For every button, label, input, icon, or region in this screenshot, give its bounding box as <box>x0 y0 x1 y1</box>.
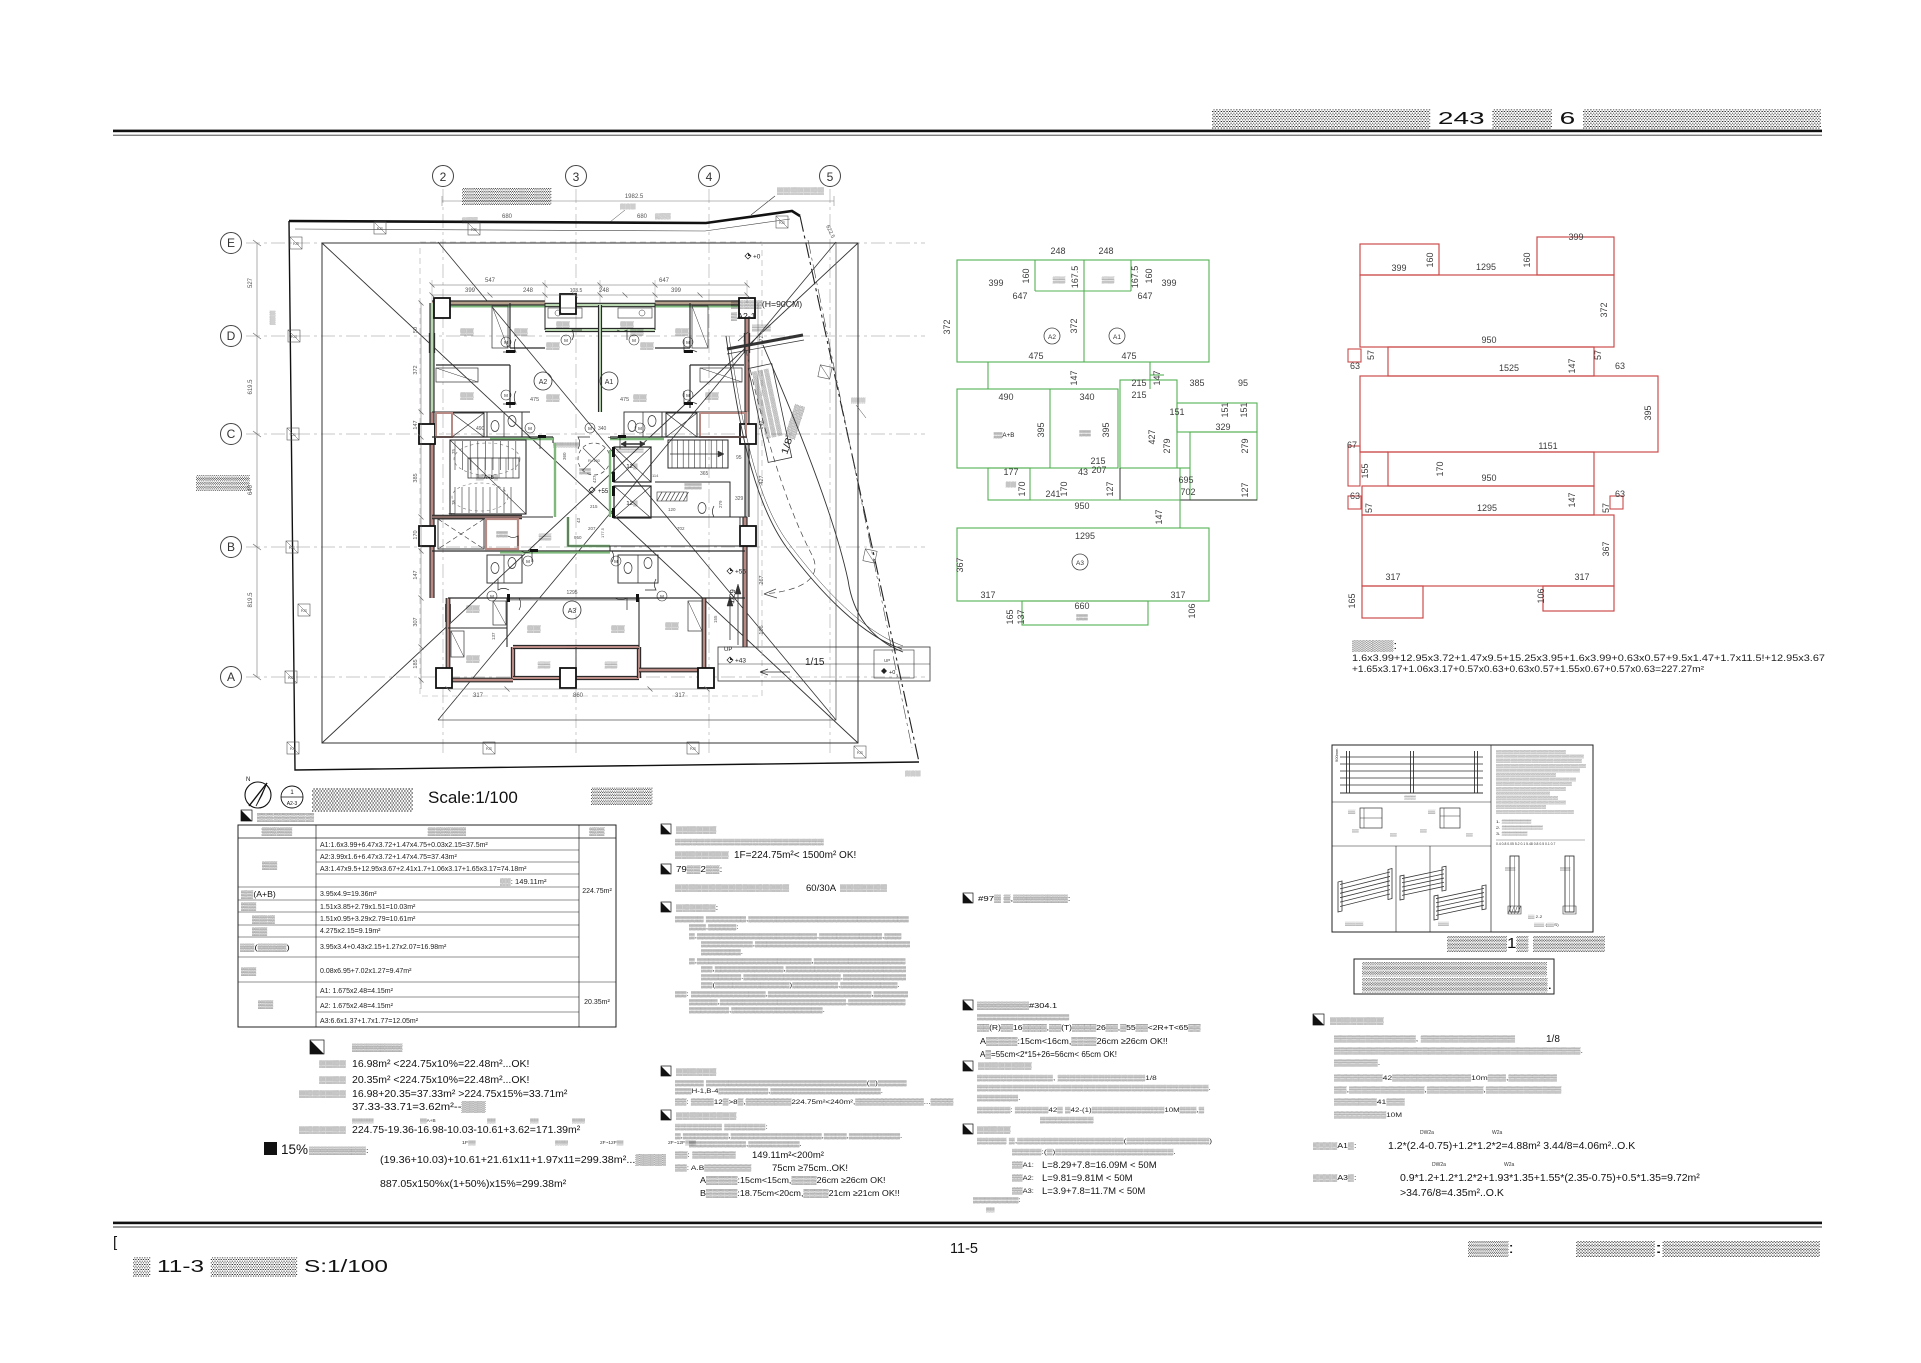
svg-text:1/15: 1/15 <box>805 657 825 668</box>
svg-text:1/8: 1/8 <box>1546 1034 1560 1045</box>
svg-text:▒▒▒▒▒▒▒▒▒▒▒▒▒▒▒▒▒▒▒▒▒▒▒▒▒▒▒▒▒▒: ▒▒▒▒▒▒▒▒▒▒▒▒▒▒▒▒▒▒▒▒▒▒▒▒▒▒▒▒▒▒▒▒▒▒▒▒▒▒▒. <box>1334 1047 1583 1055</box>
svg-text:680: 680 <box>502 214 513 220</box>
svg-text:63: 63 <box>1615 489 1625 499</box>
svg-text:149.11m²<200m²: 149.11m²<200m² <box>752 1150 824 1161</box>
svg-text:▒▒▒▒▒▒: ▒▒▒▒▒▒ <box>676 1068 716 1076</box>
svg-text:475: 475 <box>1121 351 1136 361</box>
svg-text:▒▒▒▒▒▒▒▒▒▒▒▒▒▒▒: ▒▒▒▒▒▒▒▒▒▒▒▒▒▒▒ <box>1362 961 1548 977</box>
svg-text:527: 527 <box>248 277 254 288</box>
svg-text:63: 63 <box>1615 361 1625 371</box>
svg-text:329: 329 <box>1215 422 1230 432</box>
svg-text:819.5: 819.5 <box>248 592 254 608</box>
svg-text:860: 860 <box>573 693 584 699</box>
svg-text:▒▒▒▒▒▒▒.: ▒▒▒▒▒▒▒. <box>1334 1059 1380 1067</box>
svg-text:R=150: R=150 <box>588 458 601 463</box>
svg-text:▒▒▒▒▒▒▒▒42▒▒▒▒▒▒▒▒▒▒▒▒▒10m▒▒▒,: ▒▒▒▒▒▒▒▒42▒▒▒▒▒▒▒▒▒▒▒▒▒10m▒▒▒,▒▒▒▒▒▒▒▒ <box>1334 1074 1557 1082</box>
svg-text:▒▒▒▒▒▒▒: ▒▒▒▒▒▒▒ <box>352 1043 403 1052</box>
svg-text:106: 106 <box>1187 603 1197 618</box>
svg-text:367: 367 <box>955 557 965 572</box>
svg-text:▒▒▒▒A1▒:: ▒▒▒▒A1▒: <box>1313 1142 1356 1150</box>
svg-text:▒▒: ▒▒▒▒▒▒▒: ▒▒: ▒▒▒▒▒▒▒ <box>675 1151 736 1159</box>
svg-text:+55: +55 <box>598 489 609 495</box>
svg-text:67: 67 <box>1347 440 1357 450</box>
svg-text:▒▒: ▒▒ <box>633 394 646 402</box>
svg-text:279: 279 <box>1240 438 1250 453</box>
svg-text:▒▒▒: ▒▒▒ <box>851 397 866 404</box>
svg-text:63: 63 <box>1350 491 1360 501</box>
svg-text:2: 2 <box>440 170 447 184</box>
svg-text:A1: A1 <box>1113 334 1121 341</box>
svg-text:177: 177 <box>1003 467 1018 477</box>
svg-text:A3:6.6x1.37+1.7x1.77=12.05m²: A3:6.6x1.37+1.7x1.77=12.05m² <box>320 1018 419 1025</box>
svg-text:12▒: 12▒ <box>626 463 638 470</box>
svg-text:▒▒: ▒▒ <box>262 861 278 870</box>
svg-text:170: 170 <box>1017 481 1027 496</box>
svg-text:151: 151 <box>1239 402 1249 417</box>
svg-text:372: 372 <box>942 319 952 334</box>
svg-text:▒▒: ▒▒ <box>460 392 473 400</box>
svg-text:▒▒A2:: ▒▒A2: <box>1012 1174 1034 1182</box>
svg-text:▒▒▒: ▒▒▒ <box>462 217 478 224</box>
svg-text:▒▒: ▒▒ <box>1102 276 1115 284</box>
svg-text:▒▒: A.B▒▒▒▒▒▒▒▒: ▒▒: A.B▒▒▒▒▒▒▒▒ <box>675 1164 752 1172</box>
svg-text:▒▒▒▒▒▒▒▒▒▒▒▒▒▒▒▒.: ▒▒▒▒▒▒▒▒▒▒▒▒▒▒▒▒. <box>1362 977 1552 993</box>
svg-text:▒▒A1:: ▒▒A1: <box>1012 1161 1034 1169</box>
svg-text:▒▒▒▒▒▒▒▒#304.1: ▒▒▒▒▒▒▒▒#304.1 <box>977 1001 1057 1010</box>
svg-text:15%: 15% <box>281 1142 308 1157</box>
svg-text:KS: KS <box>291 334 297 339</box>
svg-text:147: 147 <box>1152 370 1162 385</box>
svg-text:L=9.81=9.81M < 50M: L=9.81=9.81M < 50M <box>1042 1173 1133 1184</box>
svg-text:360: 360 <box>562 452 567 460</box>
svg-text:▒▒▒: ▒▒▒ <box>655 213 671 220</box>
svg-text:D: D <box>227 329 236 343</box>
svg-text:43: 43 <box>576 517 581 523</box>
svg-text:1982.5: 1982.5 <box>625 194 644 200</box>
svg-text:▒▒▒▒▒▒▒▒▒▒▒▒▒▒▒▒: ▒▒▒▒▒▒▒▒▒▒▒▒▒▒▒▒ <box>977 1014 1070 1021</box>
svg-text:KS: KS <box>690 746 696 751</box>
svg-text:▒▒,▒▒▒▒▒▒▒▒▒▒▒▒,▒▒▒▒▒▒▒▒▒▒▒▒▒▒: ▒▒,▒▒▒▒▒▒▒▒▒▒▒▒,▒▒▒▒▒▒▒▒▒▒▒▒▒▒▒▒▒▒▒▒▒ <box>701 966 907 973</box>
svg-text:1.51x3.85+2.79x1.51=10.03m²: 1.51x3.85+2.79x1.51=10.03m² <box>320 904 416 911</box>
svg-text:▒▒▒▒▒:(▒)▒▒▒▒▒▒▒▒▒▒▒▒▒▒▒▒▒▒▒▒.: ▒▒▒▒▒:(▒)▒▒▒▒▒▒▒▒▒▒▒▒▒▒▒▒▒▒▒▒. <box>1012 1148 1176 1156</box>
svg-text:185: 185 <box>413 659 419 668</box>
svg-text:16.98m² <224.75x10%=22.48m²..: 16.98m² <224.75x10%=22.48m²...OK! <box>352 1058 529 1070</box>
svg-text:▒▒▒▒▒▒▒: ▒▒▒▒▒▒▒ <box>299 1126 346 1134</box>
svg-text:M: M <box>528 426 532 431</box>
svg-text:(19.36+10.03)+10.61+21.61x11+1: (19.36+10.03)+10.61+21.61x11+1.97x11=299… <box>380 1154 667 1166</box>
svg-text:329: 329 <box>735 496 744 502</box>
svg-text:399: 399 <box>1568 232 1583 242</box>
svg-text:372: 372 <box>1599 302 1609 317</box>
svg-text:▒▒▒▒▒▒▒.▒▒▒▒▒▒▒▒▒▒▒▒▒▒▒▒▒,▒▒▒▒: ▒▒▒▒▒▒▒.▒▒▒▒▒▒▒▒▒▒▒▒▒▒▒▒▒,▒▒▒▒▒▒▒▒▒▒▒ <box>701 974 907 981</box>
svg-text:106: 106 <box>759 625 765 634</box>
svg-text:▒▒(A+B): ▒▒(A+B) <box>241 890 276 899</box>
svg-text:165: 165 <box>1347 593 1357 608</box>
svg-text:▒▒: ▒▒ <box>705 392 718 400</box>
svg-text:UP: UP <box>724 647 732 653</box>
svg-text:▒▒▒: ▒▒▒ <box>620 203 636 210</box>
svg-text:M: M <box>504 340 508 345</box>
svg-text:▒▒▒▒▒▒▒▒▒▒▒▒: ▒▒▒▒▒▒▒▒▒▒▒▒ <box>1496 750 1567 754</box>
svg-text:1F=224.75m²< 1500m² OK!: 1F=224.75m²< 1500m² OK! <box>734 850 856 861</box>
svg-text:▒▒: ▒▒ <box>258 1000 274 1009</box>
svg-text:▒▒: ▒▒ <box>675 328 688 336</box>
svg-text:▒▒: ▒▒ <box>546 342 559 350</box>
svg-text:▒▒▒▒▒▒▒▒▒▒▒▒: ▒▒▒▒▒▒▒▒▒▒▒▒ <box>1496 782 1573 786</box>
svg-text:>34.76/8=4.35m²..O.K: >34.76/8=4.35m²..O.K <box>1400 1187 1504 1199</box>
svg-text:▒,▒▒▒▒▒▒▒▒▒▒▒▒▒▒▒▒▒▒▒▒▒,▒▒▒▒▒▒: ▒,▒▒▒▒▒▒▒▒▒▒▒▒▒▒▒▒▒▒▒▒▒,▒▒▒▒▒▒▒▒▒▒▒,▒▒▒ <box>689 933 902 940</box>
svg-text:▒▒▒▒▒▒▒▒: ▒▒▒▒▒▒▒▒ <box>978 1062 1032 1070</box>
svg-text:279: 279 <box>718 500 723 508</box>
svg-text:75: 75 <box>451 499 456 505</box>
svg-text:▒▒: ▒▒ <box>1076 614 1089 621</box>
svg-text:+0: +0 <box>889 670 895 676</box>
svg-text:▒▒▒▒▒: ▒▒▒▒▒ <box>977 1126 1011 1134</box>
svg-text:▒▒▒: ▒▒▒ <box>1560 867 1571 871</box>
svg-text:▒▒▒: ▒▒▒ <box>752 324 771 332</box>
svg-text:▒▒▒▒:: ▒▒▒▒: <box>1352 639 1397 652</box>
svg-text:127: 127 <box>1240 482 1250 497</box>
svg-text:372: 372 <box>413 365 419 374</box>
svg-text:▒▒▒▒A3▒:: ▒▒▒▒A3▒: <box>1313 1174 1356 1182</box>
svg-text:▒,▒▒▒▒▒▒▒▒,▒▒▒▒▒▒▒▒▒▒▒▒▒▒▒▒,▒▒: ▒,▒▒▒▒▒▒▒▒,▒▒▒▒▒▒▒▒▒▒▒▒▒▒▒▒,▒▒▒▒,▒▒▒▒▒▒▒… <box>675 1133 903 1140</box>
svg-text:215: 215 <box>1131 390 1146 400</box>
svg-text:167.5: 167.5 <box>1070 266 1080 289</box>
svg-text:399: 399 <box>671 288 682 294</box>
svg-text:N: N <box>246 777 250 783</box>
svg-text:340: 340 <box>598 426 607 432</box>
svg-text:▒▒▒▒: ▒▒▒▒ <box>262 827 293 836</box>
svg-text:490: 490 <box>476 426 485 432</box>
svg-text:147: 147 <box>413 420 419 429</box>
svg-text:▒,▒▒▒▒▒▒▒▒▒▒▒▒▒▒▒▒▒▒▒▒,▒▒▒▒▒▒▒: ▒,▒▒▒▒▒▒▒▒▒▒▒▒▒▒▒▒▒▒▒▒,▒▒▒▒▒▒▒▒▒▒▒▒▒▒▒▒ <box>689 958 906 965</box>
svg-text:DW2a: DW2a <box>1432 1162 1446 1168</box>
svg-text:▒▒▒▒▒▒▒▒▒▒▒▒: ▒▒▒▒▒▒▒▒▒▒▒▒ <box>1496 805 1547 809</box>
svg-text:▒▒: ▒▒▒▒▒▒▒▒▒▒▒▒▒,▒▒▒▒▒▒▒▒▒▒▒: ▒▒: ▒▒▒▒▒▒▒▒▒▒▒▒▒,▒▒▒▒▒▒▒▒▒▒▒▒▒▒▒▒▒▒,▒▒▒… <box>675 991 909 998</box>
svg-text:▒▒: ▒▒ <box>460 328 473 336</box>
svg-text:20.35m² <224.75x10%=22.48m²..: 20.35m² <224.75x10%=22.48m²...OK! <box>352 1074 529 1086</box>
svg-text:M: M <box>564 338 568 343</box>
svg-text:1.2*(2.4-0.75)+1.2*1.2*2=4.88m: 1.2*(2.4-0.75)+1.2*1.2*2=4.88m² 3.44/8=4… <box>1388 1140 1635 1152</box>
svg-text:619.5: 619.5 <box>248 379 254 395</box>
svg-text:224.75m²: 224.75m² <box>582 888 612 895</box>
svg-text:▒▒: ▒▒ <box>1006 481 1017 488</box>
svg-text:137: 137 <box>1016 609 1026 624</box>
svg-text:147: 147 <box>1154 509 1164 524</box>
svg-text:1.6x3.99+12.95x3.72+1.47x9.5+1: 1.6x3.99+12.95x3.72+1.47x9.5+15.25x3.95+… <box>1352 653 1825 663</box>
svg-text:279: 279 <box>1162 438 1172 453</box>
svg-text:+1.65x3.17+1.06x3.17+0.57x0.63: +1.65x3.17+1.06x3.17+0.57x0.63+0.63x0.57… <box>1352 664 1704 674</box>
svg-text:▒▒: ▒▒ <box>620 321 633 329</box>
svg-text:▒▒▒▒▒▒▒: ▒▒▒▒▒▒▒ <box>299 1090 346 1098</box>
svg-text:UP: UP <box>884 658 890 663</box>
svg-text:317: 317 <box>1574 572 1589 582</box>
svg-text:A1: A1 <box>605 379 614 386</box>
svg-text:427: 427 <box>1147 429 1157 444</box>
svg-text:4: 4 <box>706 170 713 184</box>
svg-text:1525: 1525 <box>1499 363 1519 373</box>
svg-text:950: 950 <box>1074 501 1089 511</box>
svg-text:▒▒▒▒▒▒▒▒▒10M: ▒▒▒▒▒▒▒▒▒10M <box>1334 1111 1402 1119</box>
svg-text:▒▒▒▒▒▒▒▒▒: ▒▒▒▒▒▒▒▒▒ <box>676 1112 737 1120</box>
svg-text:▒▒A+B▒: ▒▒A+B▒ <box>476 474 499 481</box>
svg-text:399: 399 <box>1161 278 1176 288</box>
svg-text:M: M <box>638 426 642 431</box>
svg-text:▒▒▒▒▒▒▒▒▒▒▒▒: ▒▒▒▒▒▒▒▒▒▒▒▒ <box>1496 768 1581 772</box>
svg-text:▒▒ 2-2: ▒▒ 2-2 <box>1528 914 1542 919</box>
svg-text:▒▒: ▒▒ <box>1348 809 1356 814</box>
svg-text:▒▒▒▒▒▒▒▒▒▒▒▒: ▒▒▒▒▒▒▒▒▒▒▒▒ <box>1496 778 1577 782</box>
svg-text:95: 95 <box>1238 378 1248 388</box>
svg-text:▒▒▒▒▒ ▒▒▒▒▒▒▒,▒▒▒▒▒▒▒▒▒▒▒▒▒▒▒▒: ▒▒▒▒▒ ▒▒▒▒▒▒▒,▒▒▒▒▒▒▒▒▒▒▒▒▒▒▒▒▒▒▒▒▒▒▒▒▒▒… <box>675 916 910 923</box>
svg-text:▒▒▒▒▒: ▒▒▒▒▒ <box>1345 921 1364 926</box>
svg-text:▒▒▒▒▒▒▒▒: ▒▒▒▒▒▒▒▒ <box>675 851 729 859</box>
svg-text:▒▒: ▒▒▒▒12▒>8▒,▒▒▒▒▒▒▒▒224.75m: ▒▒: ▒▒▒▒12▒>8▒,▒▒▒▒▒▒▒▒224.75m²<240m²,▒▒… <box>675 1098 954 1106</box>
svg-text:▒▒▒▒▒: ▒▒▒▒▒ <box>428 827 467 836</box>
svg-text:106: 106 <box>1536 588 1546 603</box>
svg-text:120: 120 <box>668 507 676 512</box>
svg-text:▒▒: ▒▒ <box>1420 829 1427 833</box>
svg-text:▒▒▒▒▒▒▒▒▒▒▒▒▒▒▒▒▒▒▒▒▒▒▒▒▒: ▒▒▒▒▒▒▒▒▒▒▒▒▒▒▒▒▒▒▒▒▒▒▒▒▒ <box>675 838 825 846</box>
svg-text:151: 151 <box>1169 407 1184 417</box>
svg-text:▒▒(R)▒▒16▒▒▒▒,▒▒(T)▒▒▒▒26▒▒,▒5: ▒▒(R)▒▒16▒▒▒▒,▒▒(T)▒▒▒▒26▒▒,▒55▒▒<2R+T<6… <box>977 1023 1200 1032</box>
svg-text:▒▒▒▒▒▒▒▒▒▒▒▒: ▒▒▒▒▒▒▒▒▒▒▒▒ <box>1496 773 1557 777</box>
svg-text:215: 215 <box>1131 378 1146 388</box>
svg-text:695: 695 <box>1178 475 1193 485</box>
svg-text:DW2a: DW2a <box>1420 1130 1434 1136</box>
svg-text:▒ 11-3 ▒▒▒▒▒ S:1/100: ▒ 11-3 ▒▒▒▒▒ S:1/100 <box>133 1256 388 1277</box>
svg-text:▒▒▒:: ▒▒▒: <box>1468 1240 1514 1257</box>
svg-text:395: 395 <box>1101 422 1111 437</box>
svg-text:▒▒: ▒▒ <box>241 902 257 911</box>
svg-text:▒▒A3:: ▒▒A3: <box>1012 1187 1034 1195</box>
svg-text:702: 702 <box>677 526 685 531</box>
svg-text:▒▒A+B: ▒▒A+B <box>994 432 1015 439</box>
svg-text:215: 215 <box>1090 456 1105 466</box>
svg-text:KS: KS <box>301 608 307 613</box>
svg-text:103.5: 103.5 <box>570 288 583 294</box>
svg-text:▒▒▒: ▒▒▒ <box>1438 921 1449 926</box>
svg-text:M: M <box>632 338 636 343</box>
svg-text:11-5: 11-5 <box>950 1241 978 1257</box>
svg-text:▒▒,▒▒▒▒▒▒▒▒▒▒▒▒,▒▒▒▒▒▒▒▒▒,▒▒▒▒: ▒▒,▒▒▒▒▒▒▒▒▒▒▒▒,▒▒▒▒▒▒▒▒▒,▒▒▒▒▒▒▒▒▒▒▒▒ <box>1334 1086 1562 1094</box>
svg-text:▒▒: ▒▒ <box>556 321 569 329</box>
svg-text:43: 43 <box>1078 467 1088 477</box>
svg-text:427: 427 <box>759 475 765 484</box>
svg-text:▒▒▒▒▒▒▒▒▒▒▒▒: ▒▒▒▒▒▒▒▒▒▒▒▒ <box>1496 801 1567 805</box>
svg-text:950: 950 <box>1481 335 1496 345</box>
svg-text:▒▒▒▒▒ ▒▒▒▒▒▒▒▒▒▒▒▒▒▒▒▒▒▒▒▒▒▒▒▒: ▒▒▒▒▒ ▒▒▒▒▒▒▒▒▒▒▒▒▒▒▒▒▒▒▒▒▒▒▒▒▒▒▒▒(▒)▒▒▒… <box>675 1080 908 1087</box>
svg-text:385: 385 <box>413 473 419 482</box>
svg-text:M: M <box>686 393 690 398</box>
svg-text:▒▒▒▒: ▒▒▒▒ <box>319 1060 346 1068</box>
svg-text:▒▒▒▒▒▒▒▒▒▒▒▒: ▒▒▒▒▒▒▒▒▒▒▒▒ <box>1496 791 1551 795</box>
svg-text:75cm ≥75cm..OK!: 75cm ≥75cm..OK! <box>772 1163 848 1174</box>
svg-text:127: 127 <box>1105 481 1115 496</box>
svg-text:▒▒(▒▒▒▒▒▒▒▒▒▒▒▒▒)▒▒▒▒▒▒▒▒,▒▒▒▒: ▒▒(▒▒▒▒▒▒▒▒▒▒▒▒▒)▒▒▒▒▒▒▒▒,▒▒▒▒▒▒▒▒▒▒. <box>701 982 900 989</box>
svg-text:170: 170 <box>1059 481 1069 496</box>
svg-text:▒▒▒: ▒▒▒ <box>1404 795 1416 800</box>
svg-text:M: M <box>686 340 690 345</box>
svg-text:63: 63 <box>1350 361 1360 371</box>
svg-text:1/29: 1/29 <box>727 589 737 604</box>
svg-text:KS: KS <box>377 226 383 231</box>
svg-text:317: 317 <box>473 693 484 699</box>
svg-text:▒▒▒▒▒▒▒▒▒▒▒▒: ▒▒▒▒▒▒▒▒▒▒▒▒ <box>1496 759 1583 763</box>
svg-text:160: 160 <box>1144 268 1154 283</box>
svg-text:147: 147 <box>1567 492 1577 507</box>
svg-text:#97▒ ▒,▒▒▒▒▒▒▒▒:: #97▒ ▒,▒▒▒▒▒▒▒▒: <box>978 894 1070 903</box>
svg-text:▒▒: ▒▒ <box>1079 430 1092 437</box>
svg-text:▒▒▒: ▒▒▒ <box>252 915 275 924</box>
svg-text:▒▒▒▒▒▒▒: ▒▒▒▒▒▒▒ <box>257 812 314 822</box>
svg-text:▒▒▒▒▒▒▒41▒▒▒: ▒▒▒▒▒▒▒41▒▒▒ <box>1334 1098 1405 1106</box>
svg-text:▒▒: ▒▒ <box>1053 276 1066 284</box>
svg-text:▒▒▒▒▒▒: ▒▒▒▒▒▒ <box>676 826 716 834</box>
svg-text:▒▒▒▒▒▒▒▒▒▒,▒▒▒▒▒▒▒▒▒.: ▒▒▒▒▒▒▒▒▒▒,▒▒▒▒▒▒▒▒▒. <box>689 1141 802 1148</box>
svg-text:57: 57 <box>1593 350 1603 360</box>
svg-text:C: C <box>227 427 236 441</box>
svg-text:▒▒: ▒▒ <box>640 342 653 350</box>
svg-text:900mm: 900mm <box>1334 748 1339 762</box>
svg-text:KS: KS <box>289 545 295 550</box>
svg-text:5: 5 <box>827 170 834 184</box>
svg-text:385: 385 <box>1189 378 1204 388</box>
svg-text:▒▒▒H-1,B-4▒▒▒▒▒▒▒▒▒,▒▒▒▒▒▒▒▒▒▒: ▒▒▒H-1,B-4▒▒▒▒▒▒▒▒▒,▒▒▒▒▒▒▒▒▒▒▒▒▒▒▒▒▒▒▒▒… <box>675 1088 883 1095</box>
svg-text:207: 207 <box>588 526 596 531</box>
svg-text:▒▒▒▒▒▒▒▒▒▒▒▒: ▒▒▒▒▒▒▒▒▒▒▒▒ <box>1496 796 1559 800</box>
svg-text:▒▒▒▒▒▒▒▒▒: ▒▒▒▒▒▒▒▒▒ <box>1040 1116 1094 1124</box>
svg-text:151: 151 <box>1220 402 1230 417</box>
svg-text:+55: +55 <box>735 569 746 576</box>
svg-text:KS: KS <box>486 746 492 751</box>
svg-text:▒▒▒▒▒: ▒▒▒▒▒ <box>312 788 414 812</box>
svg-text:372: 372 <box>1069 318 1079 333</box>
svg-text:0.9*1.2+1.2*1.2*2+1.93*1.35+1.: 0.9*1.2+1.2*1.2*2+1.93*1.35+1.55*(2.35-0… <box>1400 1172 1700 1184</box>
svg-text:KS: KS <box>857 750 863 755</box>
svg-text:12▒: 12▒ <box>626 500 638 507</box>
svg-text:▒▒▒▒: ▒▒▒▒ <box>591 787 653 805</box>
svg-text:160: 160 <box>1021 268 1031 283</box>
svg-text:▒▒▒▒▒▒▒▒▒▒▒▒▒▒▒▒▒: ▒▒▒▒▒▒▒▒▒▒▒▒▒▒▒▒▒ <box>675 884 789 892</box>
svg-text:▒▒▒▒:▒▒▒▒▒▒▒▒: ▒▒▒▒:▒▒▒▒▒▒▒▒ <box>1576 1240 1821 1257</box>
svg-text:▒▒▒▒▒▒▒.: ▒▒▒▒▒▒▒. <box>701 949 743 956</box>
svg-text:475: 475 <box>530 397 539 403</box>
svg-text:▒▒▒: ▒▒▒ <box>684 483 702 490</box>
svg-text:M: M <box>504 393 508 398</box>
svg-text:M: M <box>526 559 530 564</box>
svg-text:317: 317 <box>1385 572 1400 582</box>
svg-text:340: 340 <box>1079 392 1094 402</box>
svg-text:1151: 1151 <box>1538 441 1557 451</box>
svg-text:▒▒▒▒▒▒▒: ▒▒▒▒▒▒▒ <box>840 884 887 892</box>
svg-text:A: A <box>227 670 235 684</box>
svg-text:1.51x0.95+3.29x2.79=10.61m²: 1.51x0.95+3.29x2.79=10.61m² <box>320 916 416 923</box>
svg-text:▒▒▒,▒▒▒▒▒:: ▒▒▒,▒▒▒▒▒: <box>689 924 739 931</box>
svg-text:▒▒▒▒▒1▒ ▒▒▒▒▒▒: ▒▒▒▒▒1▒ ▒▒▒▒▒▒ <box>1447 935 1606 952</box>
svg-text:▒▒: ▒▒ <box>1390 833 1397 837</box>
svg-text:A▒▒▒▒▒:15cm<15cm,▒▒▒▒26cm ≥26c: A▒▒▒▒▒:15cm<15cm,▒▒▒▒26cm ≥26cm OK! <box>700 1175 886 1185</box>
svg-text:A2:3.99x1.6+6.47x3.72+1.47x4.7: A2:3.99x1.6+6.47x3.72+1.47x4.75=37.43m² <box>320 854 457 861</box>
svg-text:▒▒▒▒▒▒:: ▒▒▒▒▒▒: <box>676 904 718 912</box>
svg-text:547: 547 <box>485 278 496 284</box>
svg-text:317: 317 <box>675 693 686 699</box>
svg-text:A2-3: A2-3 <box>287 801 298 807</box>
svg-text:▒▒▒▒▒▒▒▒▒▒▒▒: ▒▒▒▒▒▒▒▒▒▒▒▒ <box>1496 764 1587 768</box>
svg-text:A3: A3 <box>1076 560 1084 567</box>
svg-text:▒▒: ▒▒ <box>579 468 592 475</box>
svg-text:A1: 1.675x2.48=4.15m²: A1: 1.675x2.48=4.15m² <box>320 988 394 995</box>
svg-text:A1:1.6x3.99+6.47x3.72+1.47x4.7: A1:1.6x3.99+6.47x3.72+1.47x4.75+0.03x2.1… <box>320 842 488 849</box>
svg-text:660: 660 <box>1074 601 1089 611</box>
svg-text:248: 248 <box>1050 246 1065 256</box>
svg-text:▒▒: ▒▒ <box>589 827 605 836</box>
svg-text:475: 475 <box>620 397 629 403</box>
svg-text:▒▒: ▒▒ <box>241 967 257 976</box>
svg-text:60/30A: 60/30A <box>806 883 837 894</box>
svg-text:▒▒: ▒▒ <box>665 622 678 630</box>
svg-text:L=8.29+7.8=16.09M < 50M: L=8.29+7.8=16.09M < 50M <box>1042 1160 1157 1171</box>
svg-text:▒▒: ▒▒ <box>538 661 551 669</box>
svg-text:▒▒: 149.11m²: ▒▒: 149.11m² <box>500 878 547 886</box>
svg-text:▒▒: ▒▒ <box>252 927 268 936</box>
svg-text:▒▒▒: ▒▒▒ <box>269 310 276 325</box>
svg-text:79▒▒2▒▒:: 79▒▒2▒▒: <box>676 865 722 874</box>
svg-text:KS: KS <box>293 241 299 246</box>
svg-text:160: 160 <box>1522 252 1532 267</box>
svg-text:▒▒(▒▒▒▒): ▒▒(▒▒▒▒) <box>240 943 290 952</box>
svg-text:950: 950 <box>1481 473 1496 483</box>
svg-text:224.75-19.36-16.98-10.03-10.61: 224.75-19.36-16.98-10.03-10.61+3.62=171.… <box>352 1124 581 1136</box>
svg-text:20.35m²: 20.35m² <box>584 999 610 1006</box>
svg-text:167.5: 167.5 <box>1130 266 1140 289</box>
svg-text:B: B <box>227 540 235 554</box>
svg-text:16.98+20.35=37.33m² >224.75x1: 16.98+20.35=37.33m² >224.75x15%=33.71m² <box>352 1088 568 1100</box>
svg-text:▒▒▒▒▒▒▒▒ ▒▒▒▒▒▒▒:: ▒▒▒▒▒▒▒▒ ▒▒▒▒▒▒▒: <box>675 1123 768 1131</box>
svg-text:▒▒: ▒▒ <box>496 531 509 538</box>
svg-text:114: 114 <box>652 473 659 478</box>
svg-text:248: 248 <box>1098 246 1113 256</box>
svg-text:267: 267 <box>759 575 765 584</box>
svg-text:207: 207 <box>1091 465 1106 475</box>
svg-text:▒▒▒▒: ▒▒▒▒ <box>319 1076 346 1084</box>
svg-text:147: 147 <box>413 570 419 579</box>
svg-text:317: 317 <box>1170 590 1185 600</box>
svg-text:▒▒: ▒▒ <box>466 605 479 613</box>
svg-text:W2a: W2a <box>1504 1162 1515 1168</box>
svg-text:A3: A3 <box>568 608 577 615</box>
svg-text:177.5: 177.5 <box>600 527 605 538</box>
svg-text:▒▒: ▒▒ <box>514 328 527 336</box>
svg-text:680: 680 <box>637 214 648 220</box>
svg-text:1295: 1295 <box>566 590 577 596</box>
svg-text:▒▒▒▒▒▒▒.: ▒▒▒▒▒▒▒. <box>977 1094 1021 1102</box>
svg-text:▒▒▒▒▒▒▒▒▒,▒▒▒▒▒▒▒▒▒▒▒▒▒▒▒▒▒▒▒▒: ▒▒▒▒▒▒▒▒▒,▒▒▒▒▒▒▒▒▒▒▒▒▒▒▒▒▒▒▒▒▒▒▒▒▒▒▒ <box>701 941 911 948</box>
svg-text:▒▒: ▒▒ <box>527 625 540 633</box>
svg-text:KS: KS <box>290 432 296 437</box>
svg-text:▒▒▒: ▒▒▒ <box>905 770 921 777</box>
svg-text:W2a: W2a <box>1492 1130 1503 1136</box>
svg-text:490: 490 <box>998 392 1013 402</box>
svg-text:▒▒: ▒▒ <box>466 655 479 663</box>
svg-text:▒▒: ▒▒ <box>630 328 643 336</box>
svg-text:A3:1.47x9.5+12.95x3.67+2.41x1.: A3:1.47x9.5+12.95x3.67+2.41x1.7+1.06x3.1… <box>320 866 527 873</box>
svg-text:▒▒▒▒▒▒: ▒▒▒▒▒▒42▒ ▒42-(1)▒▒▒▒▒: ▒▒▒▒▒▒: ▒▒▒▒▒▒42▒ ▒42-(1)▒▒▒▒▒▒▒▒▒▒▒▒▒10… <box>977 1106 1205 1114</box>
svg-text:137: 137 <box>491 632 496 640</box>
svg-text:▒▒▒▒▒▒▒▒▒▒▒▒: ▒▒▒▒▒▒▒▒▒▒▒▒ <box>1496 787 1567 791</box>
svg-text:▒▒▒ (▒▒S): ▒▒▒ (▒▒S) <box>1534 922 1560 927</box>
svg-text:M: M <box>614 559 618 564</box>
